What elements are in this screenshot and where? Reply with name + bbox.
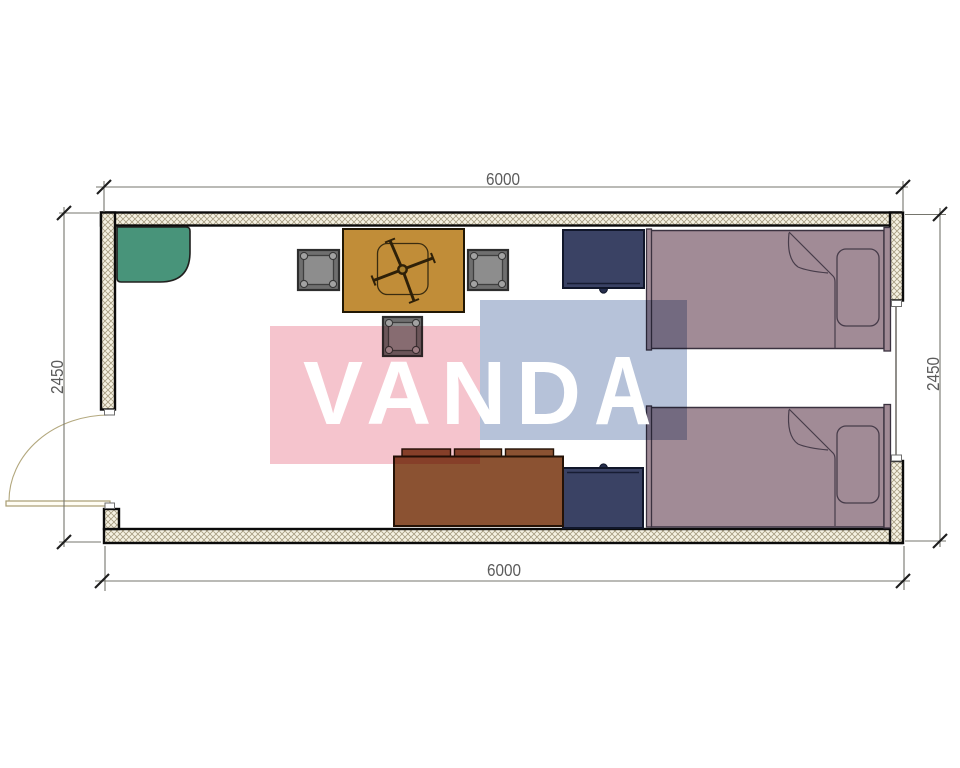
svg-text:VAND: VAND [303, 344, 581, 444]
svg-text:2450: 2450 [47, 360, 67, 394]
svg-text:A: A [594, 337, 651, 445]
svg-text:6000: 6000 [487, 560, 521, 580]
svg-text:6000: 6000 [486, 169, 520, 189]
svg-text:2450: 2450 [923, 357, 943, 391]
